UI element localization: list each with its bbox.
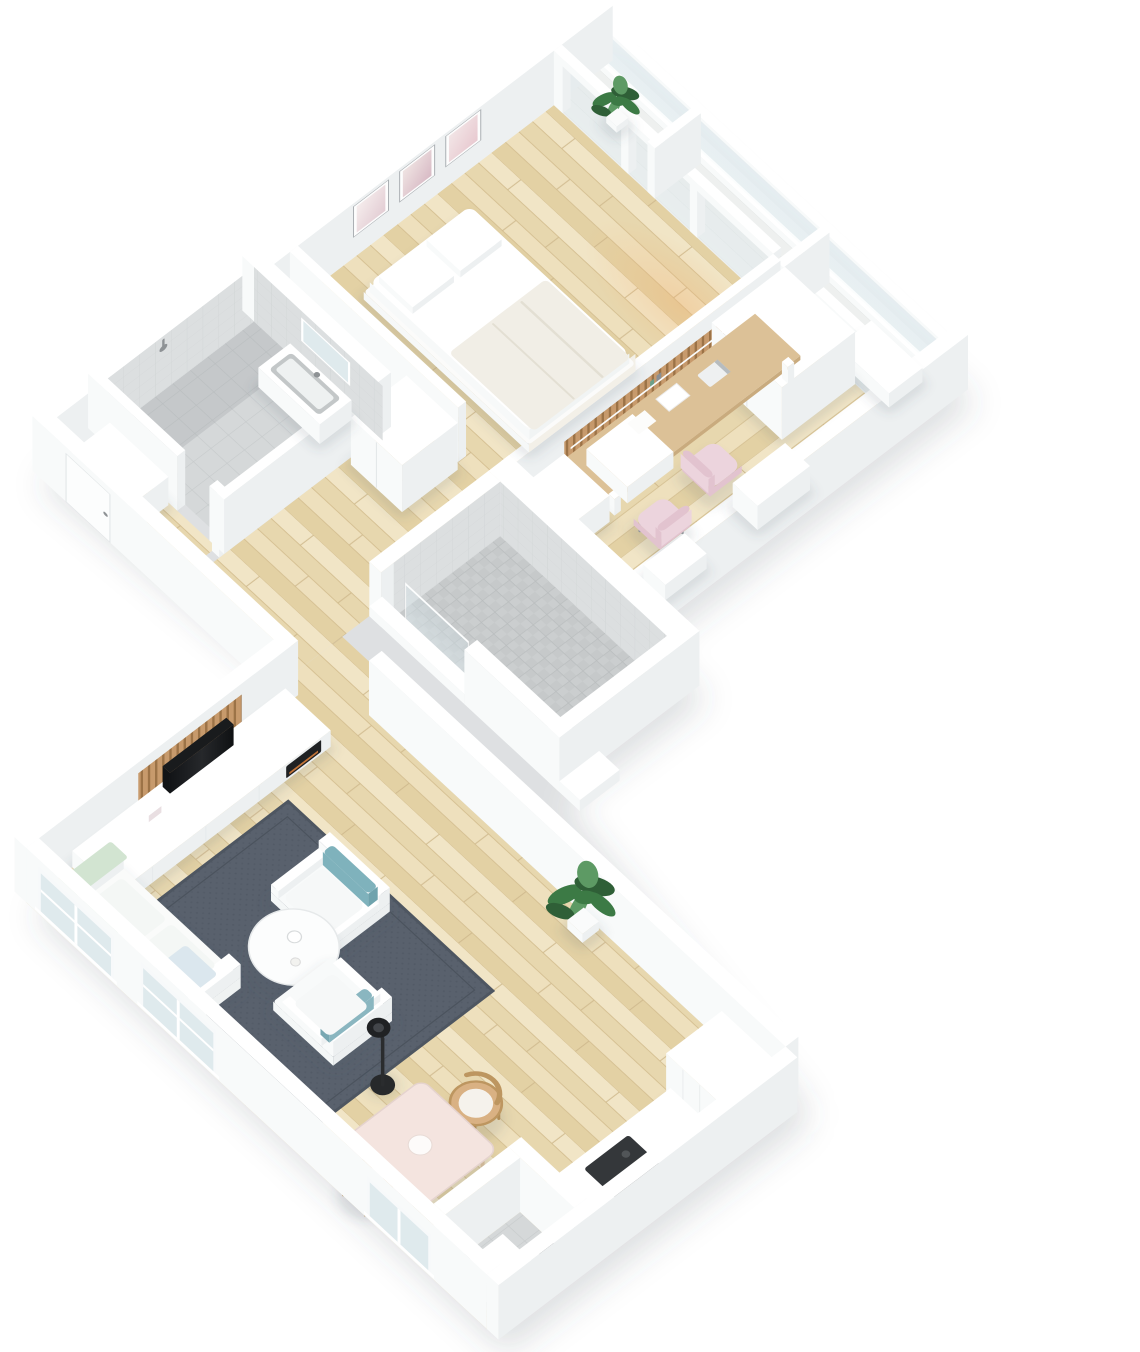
floorplan-stage xyxy=(0,0,1140,1352)
desk-leg xyxy=(782,357,794,384)
wall-hall-divider xyxy=(209,480,232,554)
floorplan-scene xyxy=(0,0,1140,1352)
scene-root xyxy=(15,0,976,1352)
